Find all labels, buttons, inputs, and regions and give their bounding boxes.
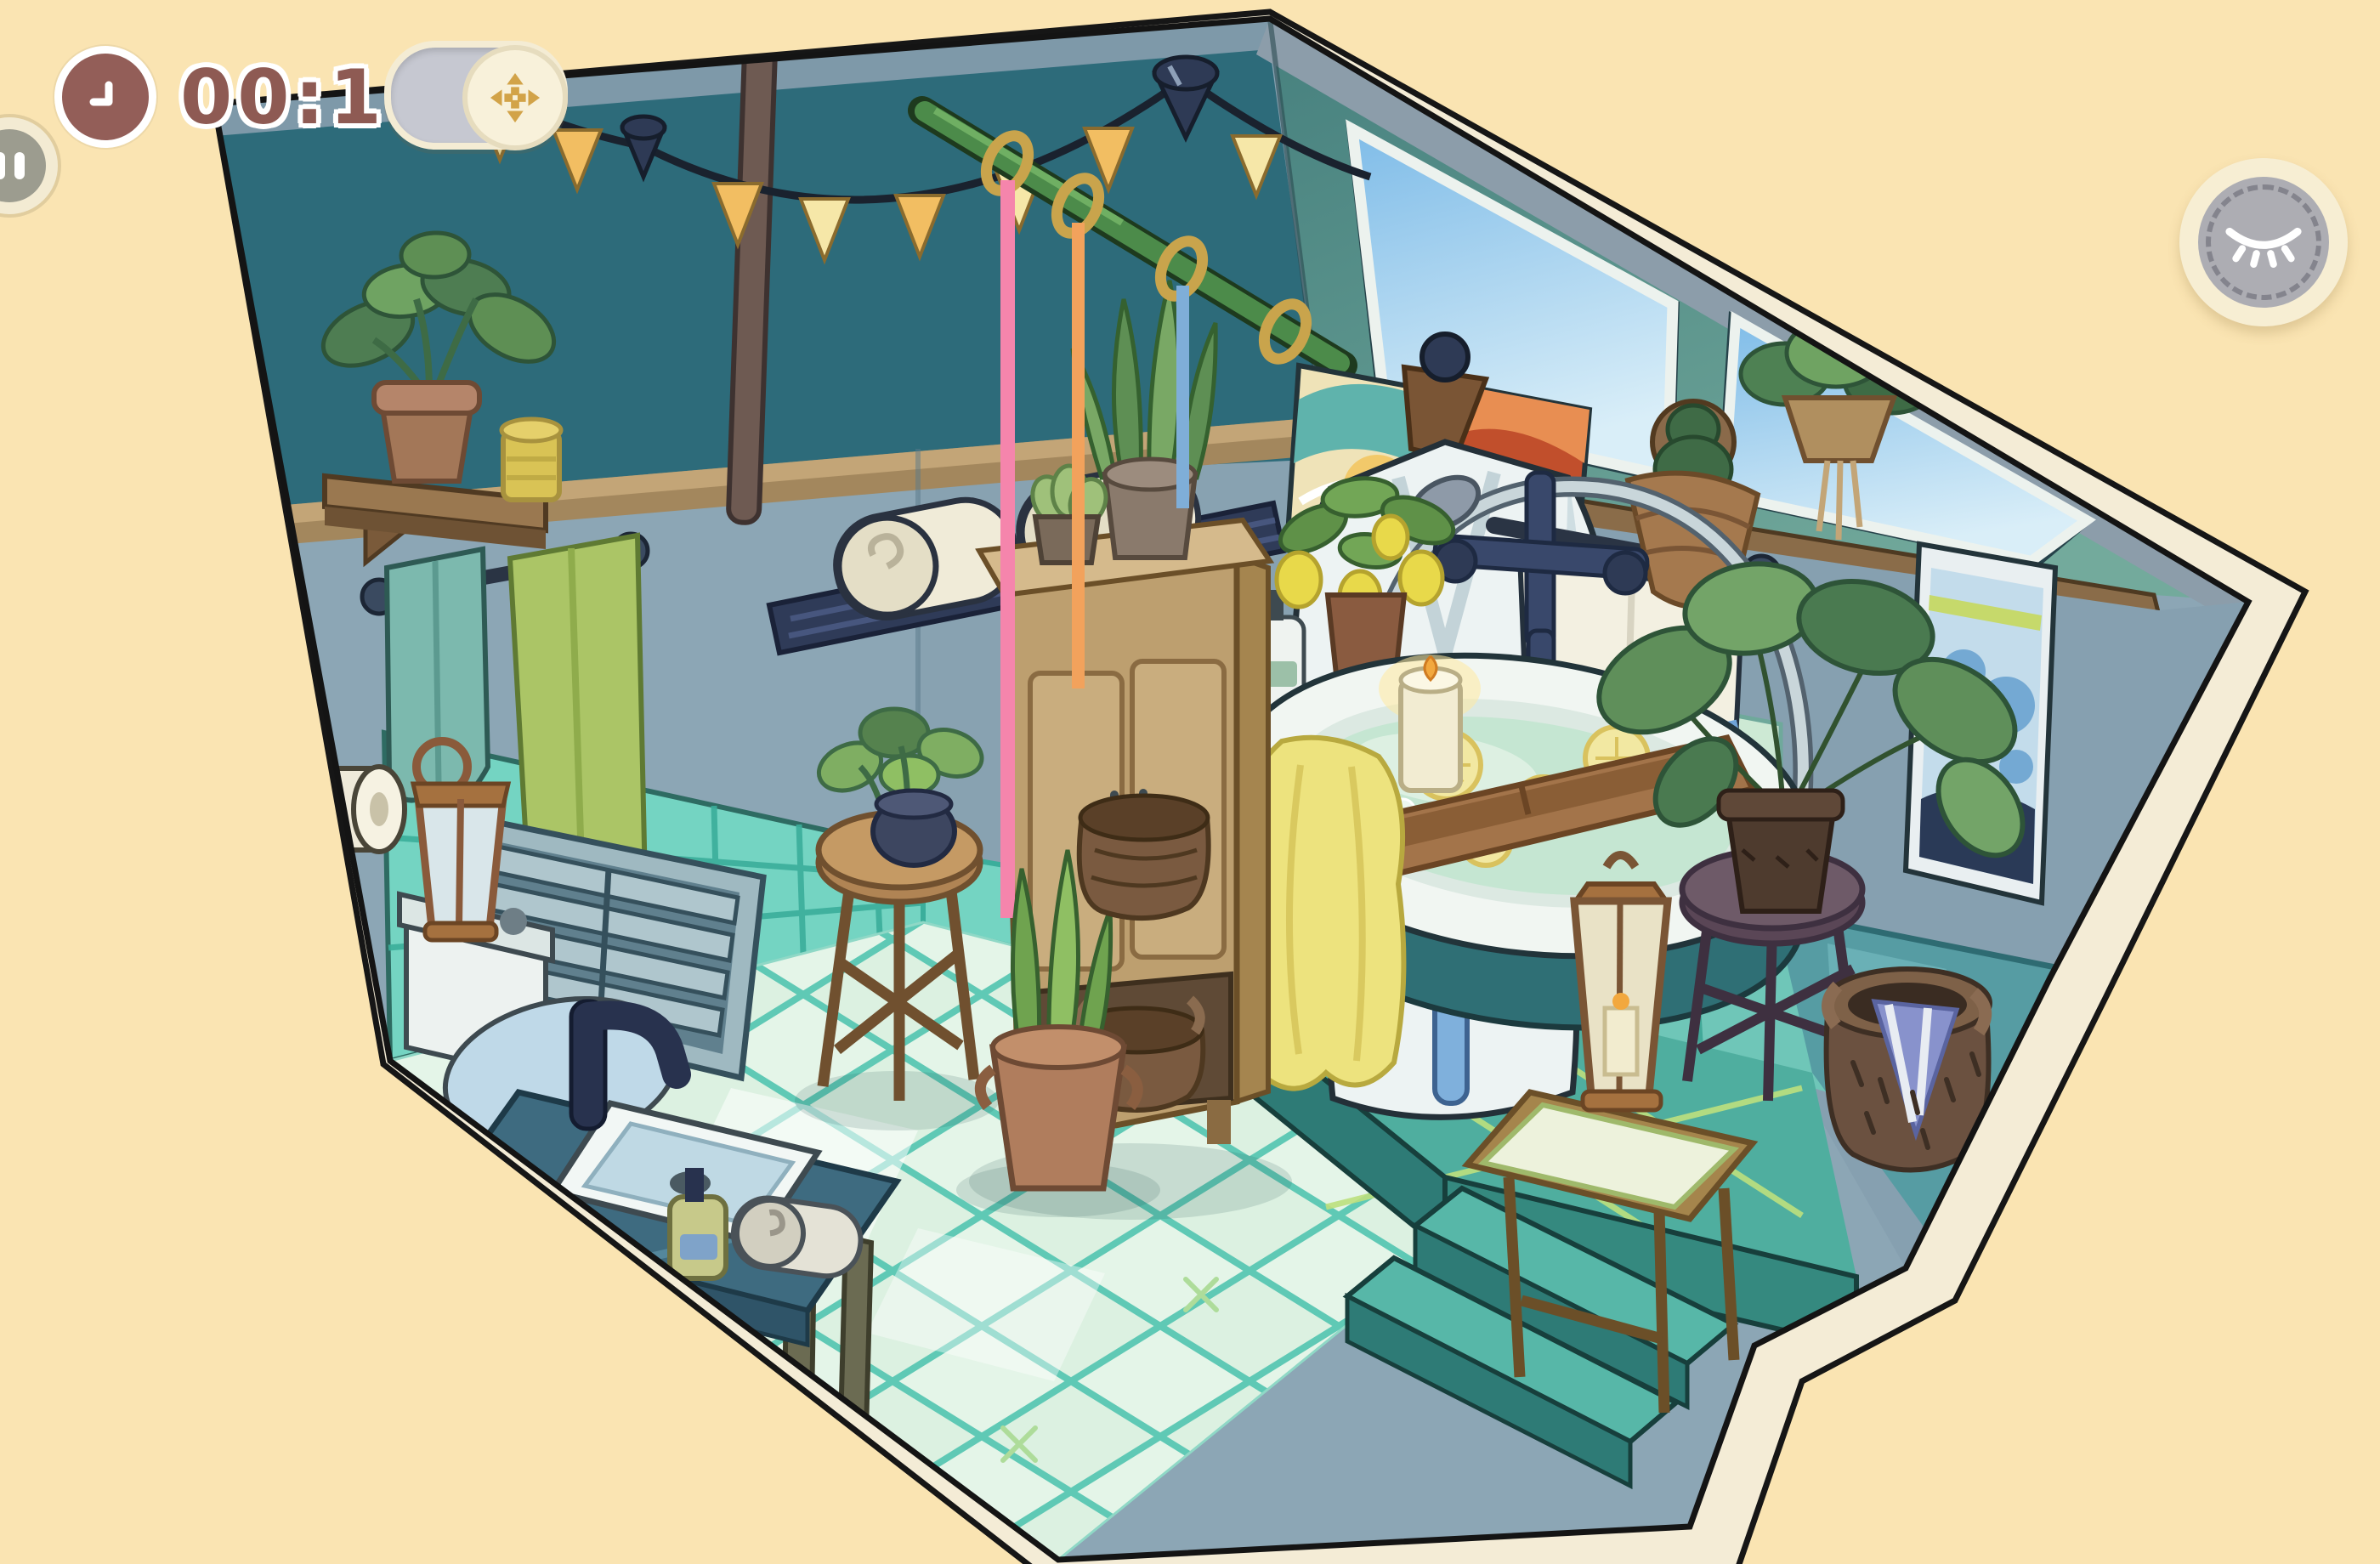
pause-icon xyxy=(0,129,46,202)
hide-items-button[interactable] xyxy=(2179,158,2348,326)
closed-eye-icon xyxy=(2198,177,2329,308)
clock-icon xyxy=(54,46,156,148)
move-arrows-icon xyxy=(489,71,541,124)
laundry-basket[interactable] xyxy=(1825,969,1990,1170)
wicker-basket[interactable] xyxy=(1079,796,1209,918)
room-illustration xyxy=(0,0,2380,1564)
table-lantern xyxy=(1574,855,1668,1110)
toggle-thumb[interactable] xyxy=(462,45,568,150)
move-mode-toggle[interactable] xyxy=(384,41,568,150)
storage-jar[interactable] xyxy=(501,419,561,500)
